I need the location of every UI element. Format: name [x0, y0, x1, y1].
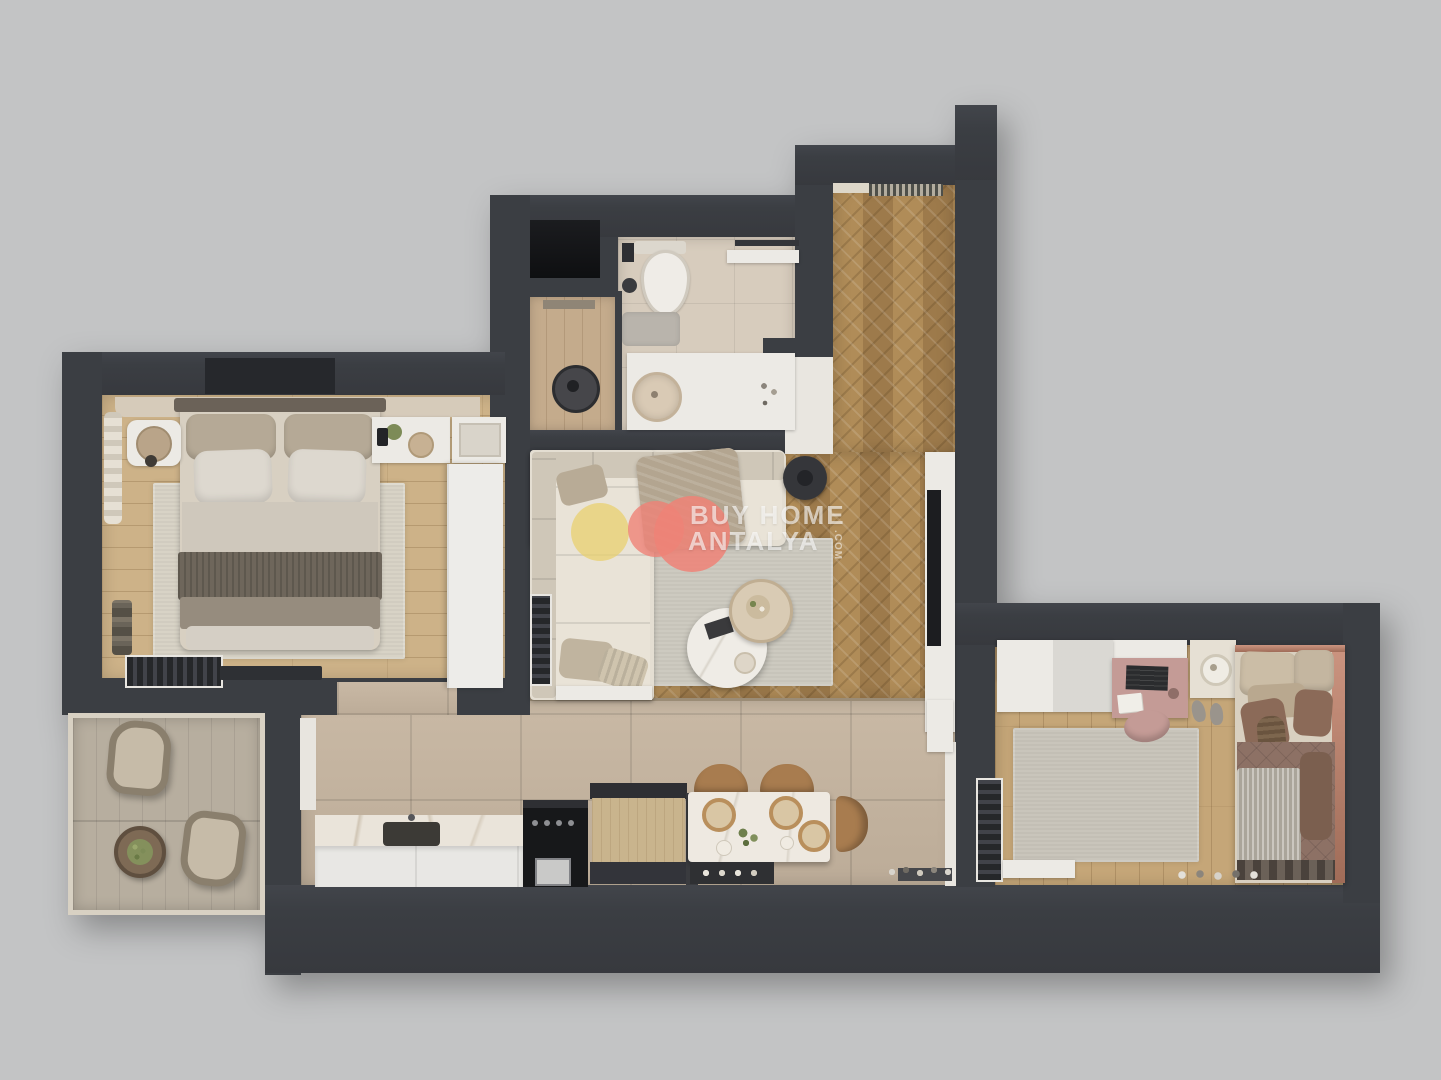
master-headboard: [174, 398, 386, 412]
nightstand-tray: [408, 432, 434, 458]
kitchen-faucet: [408, 814, 415, 821]
wall-master-left: [62, 352, 102, 715]
wall-bedroom2-right: [1343, 603, 1380, 903]
wall-entry-step: [955, 105, 997, 183]
table-dish-1: [716, 840, 732, 856]
bath-mat: [622, 312, 680, 346]
entrance-door-leaf: [833, 183, 869, 193]
bedroom2-rug: [1013, 728, 1199, 862]
entrance-door-mat: [869, 184, 943, 196]
shelf-picture-frame: [459, 423, 501, 457]
wall-bottom-band: [265, 885, 1380, 973]
vanity-accessories: [756, 378, 782, 412]
table-centerpiece-greens: [734, 824, 764, 848]
nightstand-phone: [377, 428, 388, 446]
shoe-rack-items: [884, 862, 956, 882]
master-bed-foot: [186, 626, 374, 650]
toilet-flush-box: [622, 243, 634, 262]
balcony-chair-1: [105, 718, 173, 797]
basin-drain: [651, 391, 658, 398]
nightstand-left-cup: [145, 455, 157, 467]
washbasin: [632, 372, 682, 422]
bed2-long-cushion: [1300, 752, 1332, 840]
bedroom2-wardrobe-deep: [997, 640, 1113, 712]
wall-bedroom2-top: [955, 603, 1380, 645]
oven-front: [535, 858, 571, 886]
side-table-decor: [746, 595, 770, 619]
bathroom-bin: [622, 278, 637, 293]
coffee-table-plate: [734, 652, 756, 674]
kitchen-wall-face: [300, 718, 316, 810]
watermark: BUY HOME ANTALYA .COM: [560, 490, 880, 580]
sofa-base-platform: [556, 686, 652, 700]
stove-burner-4: [568, 820, 574, 826]
master-pillow-left: [193, 449, 273, 506]
master-door-leaf: [220, 666, 322, 680]
bedroom2-shoes-row: [1172, 866, 1262, 884]
stove-burner-3: [556, 820, 562, 826]
master-sheet: [182, 502, 378, 556]
master-radiator: [125, 655, 223, 688]
laundry-shelf: [543, 300, 595, 309]
wall-corridor-right: [955, 180, 997, 647]
wall-entry-top: [795, 145, 957, 185]
living-door-open: [785, 430, 833, 454]
kitchen-sink: [383, 822, 440, 846]
nightstand-lamp-center: [1210, 664, 1217, 671]
master-curtain: [104, 412, 122, 524]
watermark-suffix: .COM: [832, 530, 843, 560]
master-door-opening: [337, 682, 457, 715]
nightstand-plant: [386, 424, 402, 440]
bathroom-door-open: [795, 357, 833, 430]
bed2-cushion-brown-2: [1292, 689, 1333, 738]
table-dish-2: [780, 836, 794, 850]
bedroom2-radiator: [976, 778, 1003, 882]
kitchen-cabinet-front: [315, 846, 523, 887]
master-blanket-fold: [180, 597, 380, 629]
master-wardrobe: [447, 464, 503, 688]
entry-hall-floor: [833, 183, 955, 454]
placemat-2: [769, 796, 803, 830]
nightstand-lamp: [1200, 654, 1232, 686]
stove-burner-1: [532, 820, 538, 826]
tall-cabinet-top: [590, 783, 687, 799]
master-pillow-right: [287, 449, 367, 506]
tall-cabinet-bottom: [590, 862, 687, 884]
watermark-logo-yellow-circle: [571, 503, 629, 561]
washing-machine-center: [567, 380, 579, 392]
wall-laundry-divider: [615, 295, 622, 432]
placemat-3: [798, 820, 830, 852]
wall-master-right: [505, 352, 530, 715]
black-round-table-center: [797, 470, 813, 486]
watermark-line-1: BUY HOME: [690, 502, 846, 528]
master-blanket: [178, 552, 382, 600]
tall-cabinet-wood: [592, 798, 685, 864]
tv-screen: [927, 490, 941, 646]
floor-plan-render: BUY HOME ANTALYA .COM: [0, 0, 1441, 1080]
desk-notebook: [1117, 693, 1143, 713]
bench-dishes: [698, 866, 764, 880]
bed2-throw: [1237, 768, 1301, 864]
stove-burner-2: [544, 820, 550, 826]
bedroom2-bench: [1003, 860, 1075, 878]
bathroom-shelf: [727, 250, 799, 263]
desk-mug: [1168, 688, 1179, 699]
wall-laundry-divider-top: [528, 291, 622, 297]
hall-cabinet: [927, 700, 953, 752]
wall-tv-panel: [205, 358, 335, 394]
watermark-line-2: ANTALYA: [688, 528, 820, 554]
towel-rail: [735, 240, 799, 246]
utility-shaft: [530, 220, 600, 278]
balcony-plant: [127, 839, 153, 865]
master-decor-stack: [112, 600, 132, 655]
living-radiator: [530, 594, 552, 686]
desk-laptop: [1126, 665, 1169, 690]
placemat-1: [702, 798, 736, 832]
